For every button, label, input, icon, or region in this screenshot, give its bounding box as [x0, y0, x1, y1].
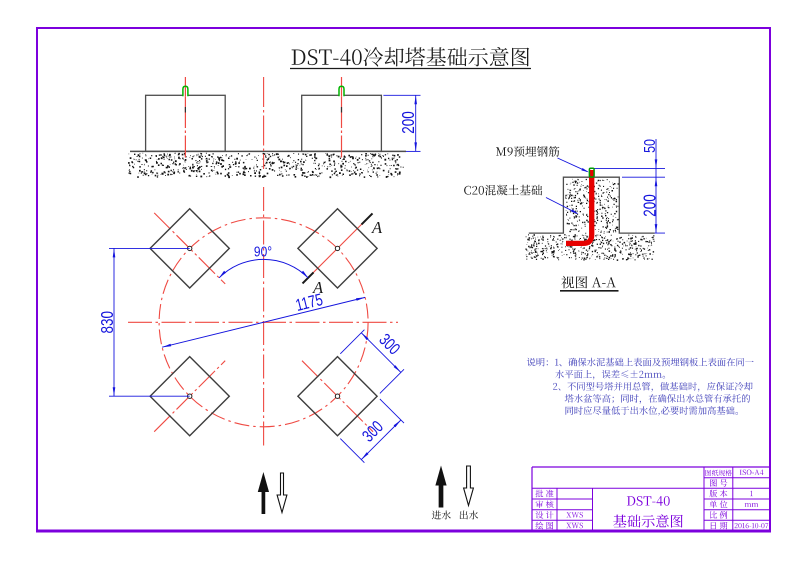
svg-text:830: 830 — [98, 311, 117, 334]
svg-text:A: A — [371, 218, 383, 237]
svg-text:50: 50 — [642, 139, 660, 153]
svg-text:90°: 90° — [254, 243, 272, 260]
svg-text:200: 200 — [641, 194, 660, 217]
svg-text:200: 200 — [399, 111, 418, 134]
